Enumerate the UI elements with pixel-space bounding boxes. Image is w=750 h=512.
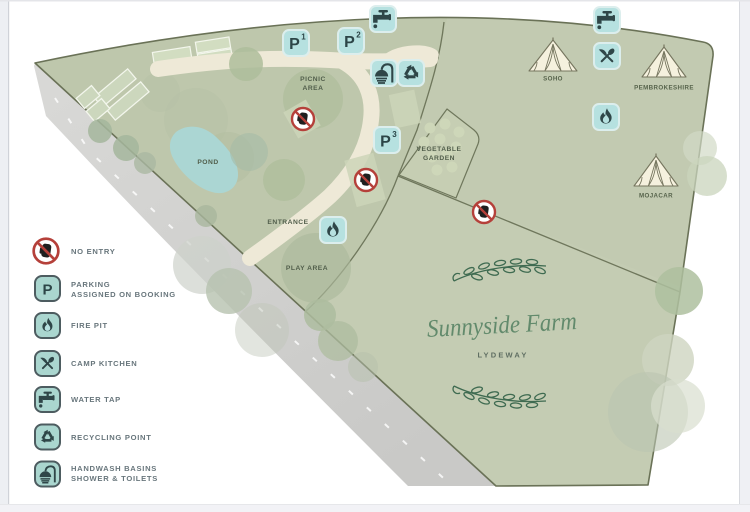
svg-text:NO ENTRY: NO ENTRY (71, 247, 116, 256)
svg-text:VEGETABLE: VEGETABLE (417, 146, 462, 153)
svg-text:P: P (344, 34, 355, 51)
svg-text:2: 2 (356, 31, 361, 40)
svg-text:3: 3 (392, 130, 397, 139)
svg-text:1: 1 (301, 33, 306, 42)
svg-text:PLAY AREA: PLAY AREA (286, 265, 328, 272)
svg-text:SHOWER & TOILETS: SHOWER & TOILETS (71, 474, 158, 483)
svg-text:P: P (289, 36, 300, 53)
svg-text:HANDWASH BASINS: HANDWASH BASINS (71, 464, 157, 473)
svg-text:PARKING: PARKING (71, 280, 110, 289)
svg-text:RECYCLING POINT: RECYCLING POINT (71, 433, 152, 442)
svg-text:ASSIGNED ON BOOKING: ASSIGNED ON BOOKING (71, 290, 176, 299)
svg-text:MOJACAR: MOJACAR (639, 193, 673, 200)
svg-text:PICNIC: PICNIC (300, 76, 326, 83)
svg-text:FIRE PIT: FIRE PIT (71, 321, 108, 330)
svg-text:WATER TAP: WATER TAP (71, 395, 121, 404)
svg-text:PEMBROKESHIRE: PEMBROKESHIRE (634, 85, 694, 92)
svg-text:GARDEN: GARDEN (423, 155, 455, 162)
svg-text:ENTRANCE: ENTRANCE (267, 219, 308, 226)
svg-text:AREA: AREA (303, 85, 324, 92)
svg-text:CAMP KITCHEN: CAMP KITCHEN (71, 359, 137, 368)
svg-text:POND: POND (197, 159, 218, 166)
svg-text:LYDEWAY: LYDEWAY (477, 351, 528, 360)
svg-text:P: P (42, 282, 52, 299)
svg-text:P: P (380, 134, 391, 151)
svg-text:SOHO: SOHO (543, 76, 563, 83)
